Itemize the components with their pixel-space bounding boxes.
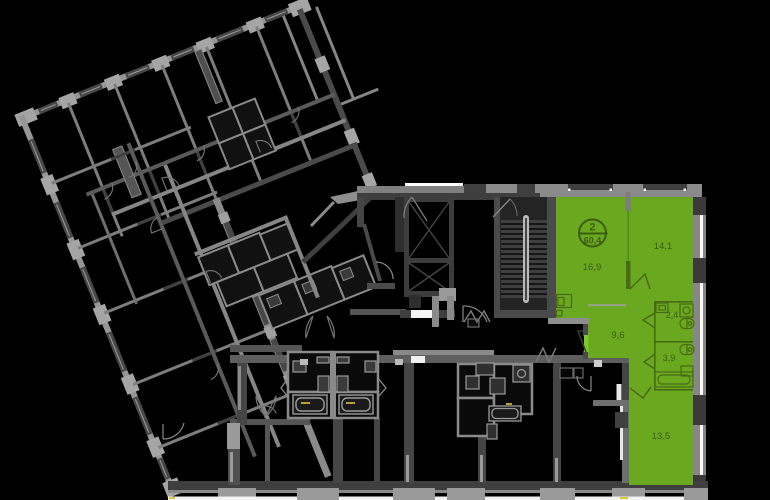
svg-text:2: 2 <box>589 222 595 234</box>
svg-text:9,6: 9,6 <box>611 330 624 341</box>
svg-text:60,4: 60,4 <box>584 236 602 246</box>
svg-text:14,1: 14,1 <box>654 241 673 252</box>
svg-text:3,9: 3,9 <box>663 353 676 363</box>
svg-text:2,4: 2,4 <box>666 310 679 320</box>
svg-text:13,5: 13,5 <box>652 431 671 442</box>
svg-text:16,9: 16,9 <box>583 262 602 273</box>
